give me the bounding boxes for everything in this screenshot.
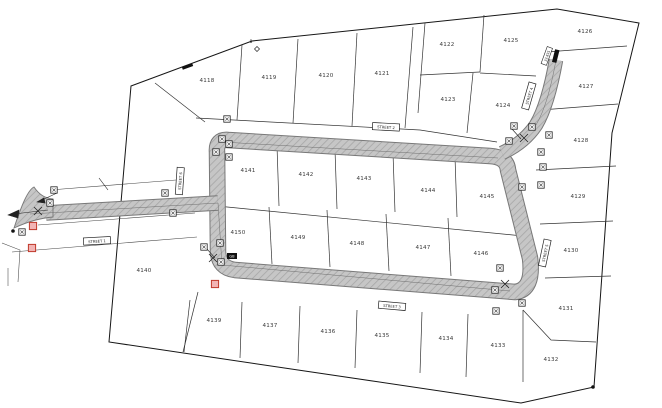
lot-label-4133: 4133 bbox=[490, 343, 505, 349]
survey-marker-highlighted bbox=[29, 222, 36, 229]
lot-label-4132: 4132 bbox=[543, 357, 558, 363]
street-label-1: STREET 1 bbox=[83, 236, 110, 245]
lot-label-4129: 4129 bbox=[570, 194, 585, 200]
survey-marker bbox=[519, 184, 525, 190]
lot-label-4118: 4118 bbox=[199, 78, 214, 84]
lot-label-4125: 4125 bbox=[503, 38, 518, 44]
survey-marker bbox=[546, 132, 552, 138]
street-label-4: STREET 4 bbox=[522, 82, 536, 110]
survey-marker bbox=[529, 124, 535, 130]
lot-label-4128: 4128 bbox=[573, 138, 588, 144]
survey-marker bbox=[538, 182, 544, 188]
lot-label-4140: 4140 bbox=[136, 268, 151, 274]
survey-marker bbox=[493, 308, 499, 314]
corner-monument-diamond bbox=[255, 47, 260, 52]
lot-label-4149: 4149 bbox=[290, 235, 305, 241]
lot-label-4119: 4119 bbox=[261, 75, 276, 81]
lot-label-4120: 4120 bbox=[318, 73, 333, 79]
survey-marker bbox=[218, 259, 224, 265]
lot-label-4146: 4146 bbox=[473, 251, 488, 257]
point-marker bbox=[591, 385, 595, 389]
street-label-5: STREET 5 bbox=[538, 239, 551, 267]
lot-label-4145: 4145 bbox=[479, 194, 494, 200]
survey-marker bbox=[170, 210, 176, 216]
survey-marker bbox=[19, 229, 25, 235]
survey-marker bbox=[217, 240, 223, 246]
lot-label-4142: 4142 bbox=[298, 172, 313, 178]
lot-label-4135: 4135 bbox=[374, 333, 389, 339]
lot-label-4126: 4126 bbox=[577, 29, 592, 35]
lot-label-4122: 4122 bbox=[439, 42, 454, 48]
lot-label-4141: 4141 bbox=[240, 168, 255, 174]
survey-marker bbox=[538, 149, 544, 155]
lot-label-4150: 4150 bbox=[230, 230, 245, 236]
survey-marker bbox=[497, 265, 503, 271]
lot-label-4147: 4147 bbox=[415, 245, 430, 251]
survey-marker bbox=[47, 200, 53, 206]
lot-label-4136: 4136 bbox=[320, 329, 335, 335]
survey-marker bbox=[219, 136, 225, 142]
survey-marker bbox=[511, 123, 517, 129]
boundary-tick bbox=[182, 63, 193, 70]
lot-label-4139: 4139 bbox=[206, 318, 221, 324]
lot-label-4123: 4123 bbox=[440, 97, 455, 103]
lot-label-4130: 4130 bbox=[563, 248, 578, 254]
survey-marker bbox=[519, 300, 525, 306]
lot-label-4121: 4121 bbox=[374, 71, 389, 77]
survey-marker bbox=[201, 244, 207, 250]
lot-label-4124: 4124 bbox=[495, 103, 510, 109]
street-label-2: STREET 2 bbox=[372, 122, 399, 131]
lot-label-4144: 4144 bbox=[420, 188, 435, 194]
lot-label-4143: 4143 bbox=[356, 176, 371, 182]
survey-marker bbox=[226, 154, 232, 160]
survey-marker bbox=[224, 116, 230, 122]
lot-label-4127: 4127 bbox=[578, 84, 593, 90]
survey-marker-highlighted bbox=[28, 244, 35, 251]
street-label-6: STREET 6 bbox=[175, 167, 184, 194]
plat-map-drawing: 4118411941204121412241234124412541264127… bbox=[0, 0, 662, 408]
lot-label-4137: 4137 bbox=[262, 323, 277, 329]
lot-label-4134: 4134 bbox=[438, 336, 453, 342]
road-loop bbox=[217, 140, 531, 292]
survey-marker bbox=[540, 164, 546, 170]
survey-marker-highlighted bbox=[211, 280, 218, 287]
parcel-lines-right bbox=[523, 46, 627, 382]
road-plate-text: GB bbox=[229, 254, 235, 258]
plat-map: 4118411941204121412241234124412541264127… bbox=[0, 0, 662, 408]
survey-marker bbox=[506, 138, 512, 144]
survey-marker bbox=[492, 287, 498, 293]
survey-marker bbox=[162, 190, 168, 196]
survey-marker bbox=[226, 141, 232, 147]
corner-monument-number: 8 bbox=[250, 39, 253, 45]
street-label-3: STREET 3 bbox=[378, 301, 406, 311]
lot-label-4131: 4131 bbox=[558, 306, 573, 312]
point-marker bbox=[11, 229, 15, 233]
survey-marker bbox=[51, 187, 57, 193]
road-plate: GB bbox=[227, 253, 237, 259]
lot-label-4148: 4148 bbox=[349, 241, 364, 247]
road-entrance-arrow bbox=[14, 187, 53, 228]
survey-marker bbox=[213, 149, 219, 155]
